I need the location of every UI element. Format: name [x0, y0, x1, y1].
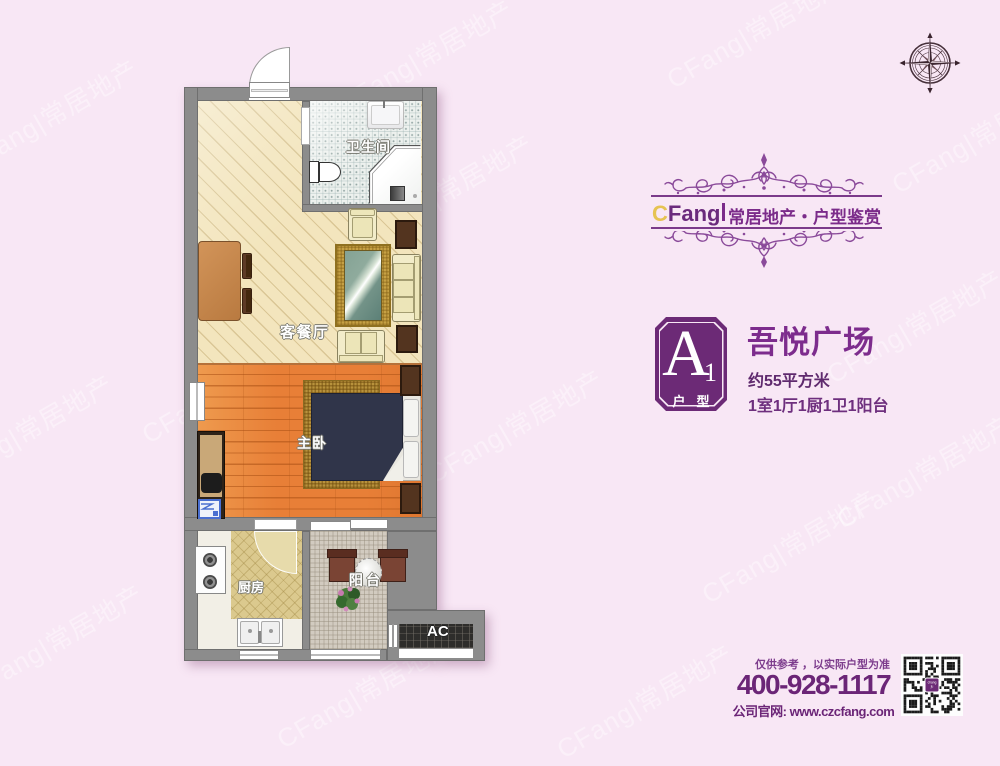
svg-text:ju: ju: [930, 685, 934, 689]
